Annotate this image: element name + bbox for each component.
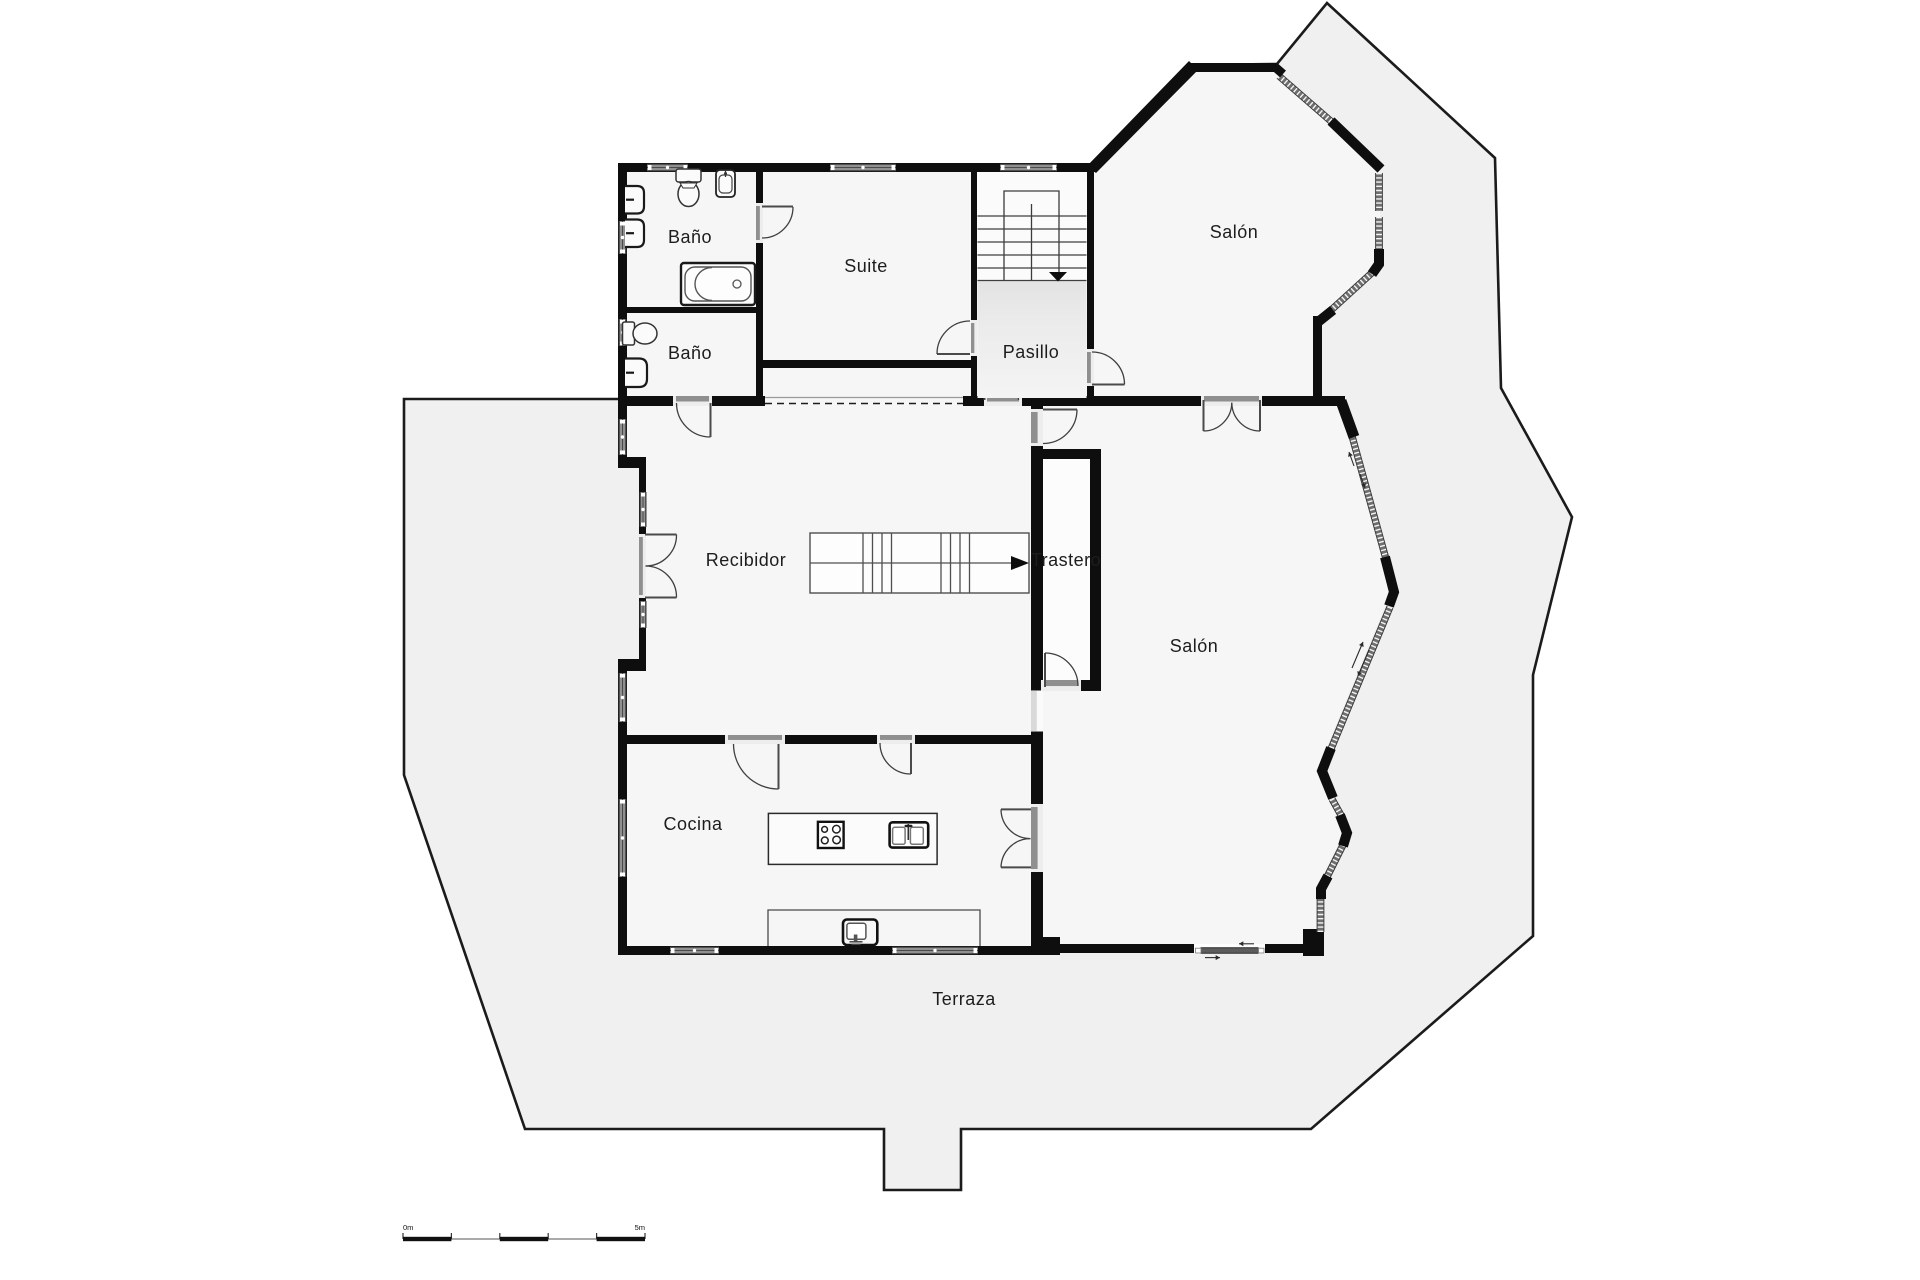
svg-text:Recibidor: Recibidor [706,550,787,570]
svg-text:Terraza: Terraza [932,989,996,1009]
svg-text:Salón: Salón [1170,636,1219,656]
svg-text:Trastero: Trastero [1031,550,1101,570]
svg-text:Pasillo: Pasillo [1003,342,1060,362]
svg-text:Suite: Suite [844,256,888,276]
svg-text:Salón: Salón [1210,222,1259,242]
svg-text:Baño: Baño [668,343,712,363]
svg-text:5m: 5m [635,1223,645,1232]
svg-text:0m: 0m [403,1223,413,1232]
svg-text:Cocina: Cocina [663,814,723,834]
svg-text:Baño: Baño [668,227,712,247]
